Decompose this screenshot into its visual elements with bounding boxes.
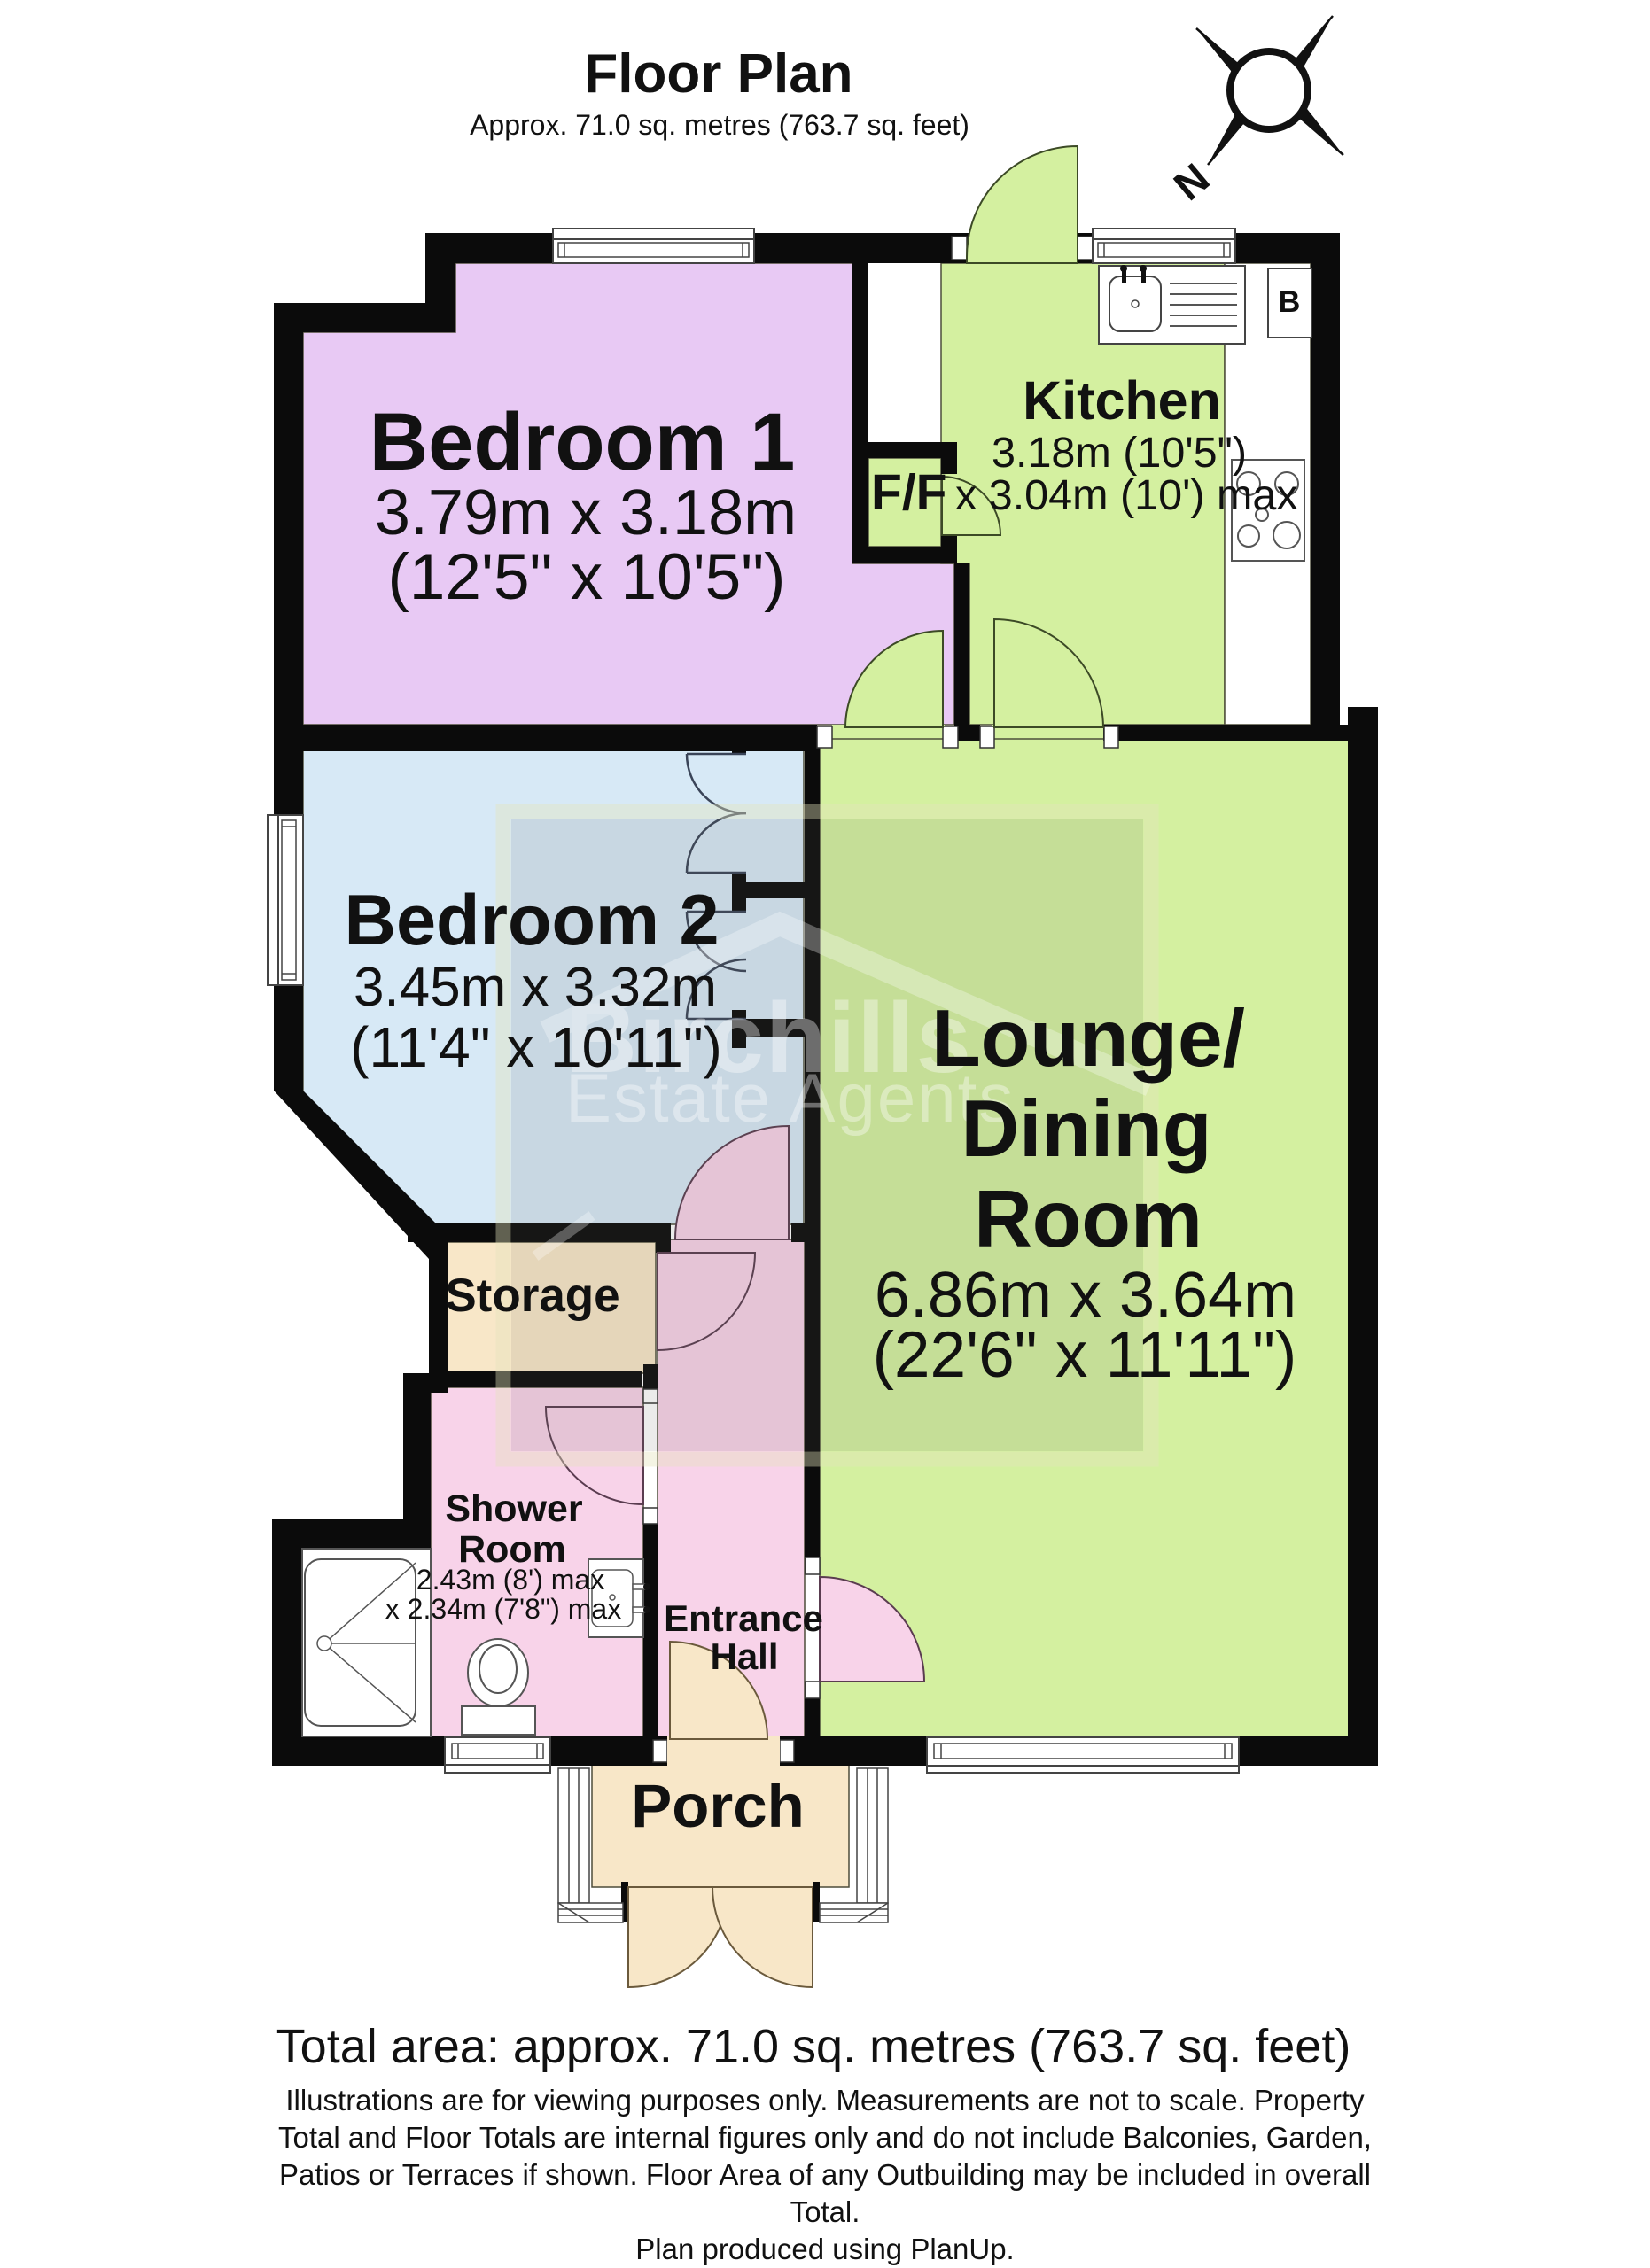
svg-text:Bedroom 2: Bedroom 2: [344, 881, 719, 960]
svg-text:Illustrations are for viewing: Illustrations are for viewing purposes o…: [285, 2084, 1365, 2117]
svg-text:(11'4" x 10'11"): (11'4" x 10'11"): [350, 1015, 722, 1079]
svg-text:Storage: Storage: [445, 1270, 619, 1322]
svg-text:(22'6" x 11'11"): (22'6" x 11'11"): [873, 1319, 1297, 1391]
svg-text:Room: Room: [974, 1175, 1202, 1264]
svg-text:Approx. 71.0 sq. metres (763.7: Approx. 71.0 sq. metres (763.7 sq. feet): [470, 109, 969, 141]
svg-text:Total area: approx. 71.0 sq. m: Total area: approx. 71.0 sq. metres (763…: [276, 2020, 1351, 2073]
svg-text:Entrance: Entrance: [664, 1597, 823, 1639]
svg-text:3.18m (10'5"): 3.18m (10'5"): [992, 429, 1247, 477]
svg-text:Total.: Total.: [790, 2195, 860, 2228]
svg-text:Hall: Hall: [710, 1635, 778, 1677]
svg-text:x 2.34m (7'8") max: x 2.34m (7'8") max: [385, 1593, 621, 1625]
svg-text:Total and Floor Totals are int: Total and Floor Totals are internal figu…: [278, 2121, 1372, 2154]
svg-text:3.79m x 3.18m: 3.79m x 3.18m: [375, 478, 797, 548]
svg-text:Dining: Dining: [961, 1084, 1211, 1174]
svg-text:Shower: Shower: [445, 1487, 583, 1530]
svg-text:Bedroom 1: Bedroom 1: [370, 397, 796, 487]
svg-text:(12'5" x 10'5"): (12'5" x 10'5"): [388, 541, 786, 613]
svg-text:Porch: Porch: [631, 1772, 805, 1840]
svg-text:Floor Plan: Floor Plan: [584, 43, 852, 105]
svg-text:3.45m x 3.32m: 3.45m x 3.32m: [354, 957, 717, 1018]
svg-text:Plan produced using PlanUp.: Plan produced using PlanUp.: [635, 2233, 1014, 2265]
svg-text:Lounge/: Lounge/: [931, 994, 1245, 1084]
svg-text:F/F: F/F: [871, 464, 946, 521]
svg-text:B: B: [1279, 285, 1301, 319]
svg-text:x 3.04m (10') max: x 3.04m (10') max: [955, 471, 1298, 519]
svg-text:2.43m (8') max: 2.43m (8') max: [416, 1564, 604, 1596]
svg-text:Patios or Terraces if shown. F: Patios or Terraces if shown. Floor Area …: [279, 2158, 1371, 2191]
svg-text:Kitchen: Kitchen: [1023, 370, 1221, 431]
